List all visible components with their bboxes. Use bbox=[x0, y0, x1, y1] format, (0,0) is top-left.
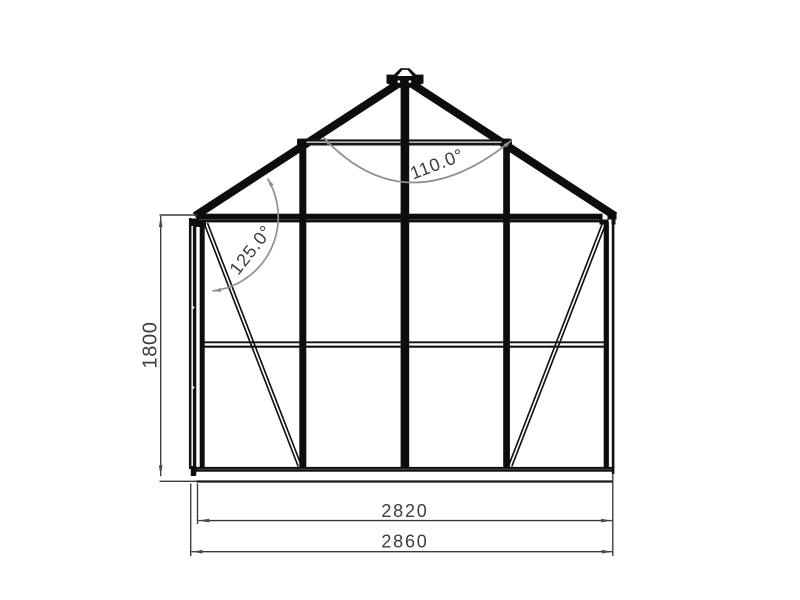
svg-text:2860: 2860 bbox=[381, 532, 428, 552]
svg-text:1800: 1800 bbox=[140, 322, 162, 369]
svg-text:2820: 2820 bbox=[381, 501, 428, 521]
